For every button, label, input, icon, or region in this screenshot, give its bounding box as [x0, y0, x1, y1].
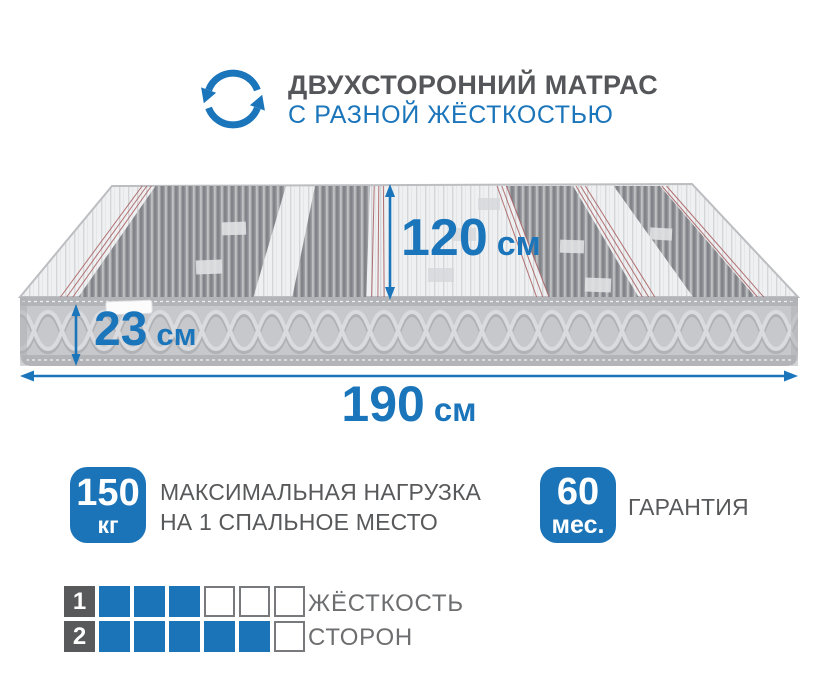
firmness-cells [99, 586, 305, 617]
firmness-cell-filled [134, 621, 165, 652]
firmness-label-line2: СТОРОН [308, 624, 413, 652]
firmness-cell-empty [274, 621, 305, 652]
max-load-line1: МАКСИМАЛЬНАЯ НАГРУЗКА [160, 477, 481, 507]
firmness-cell-filled [169, 621, 200, 652]
max-load-description: МАКСИМАЛЬНАЯ НАГРУЗКА НА 1 СПАЛЬНОЕ МЕСТ… [160, 477, 481, 537]
firmness-cells [99, 621, 305, 652]
length-value: 190 [341, 379, 424, 429]
mattress-infographic: ДВУХСТОРОННИЙ МАТРАС С РАЗНОЙ ЖЁСТКОСТЬЮ [0, 0, 816, 700]
firmness-label-line1: ЖЁСТКОСТЬ [308, 590, 464, 618]
warranty-unit: мес. [552, 513, 605, 538]
height-unit: см [156, 319, 196, 350]
page-subtitle: С РАЗНОЙ ЖЁСТКОСТЬЮ [288, 101, 613, 130]
firmness-cell-empty [239, 586, 270, 617]
rotate-arrows-icon [196, 62, 270, 136]
firmness-cell-empty [204, 586, 235, 617]
max-load-line2: НА 1 СПАЛЬНОЕ МЕСТО [160, 507, 481, 537]
firmness-cell-filled [99, 621, 130, 652]
height-value: 23 [94, 306, 147, 354]
width-value: 120 [401, 212, 488, 264]
firmness-cell-empty [274, 586, 305, 617]
firmness-cell-filled [204, 621, 235, 652]
firmness-row-side-1: 1 [64, 586, 305, 617]
side-number: 2 [64, 621, 95, 652]
max-load-value: 150 [76, 474, 139, 512]
firmness-cell-filled [169, 586, 200, 617]
firmness-cell-filled [134, 586, 165, 617]
mattress-illustration [0, 170, 816, 400]
warranty-badge: 60 мес. [540, 467, 616, 543]
page-title: ДВУХСТОРОННИЙ МАТРАС [288, 70, 658, 101]
warranty-value: 60 [557, 473, 599, 511]
firmness-row-side-2: 2 [64, 621, 305, 652]
firmness-cell-filled [239, 621, 270, 652]
firmness-cell-filled [99, 586, 130, 617]
max-load-badge: 150 кг [70, 467, 146, 543]
max-load-unit: кг [97, 514, 118, 537]
height-dimension-label: 23 см [94, 306, 197, 354]
length-dimension-label: 190 см [259, 379, 559, 429]
warranty-label: ГАРАНТИЯ [628, 492, 749, 522]
length-unit: см [434, 393, 477, 426]
width-dimension-label: 120 см [401, 212, 541, 264]
width-unit: см [497, 227, 541, 261]
side-number: 1 [64, 586, 95, 617]
